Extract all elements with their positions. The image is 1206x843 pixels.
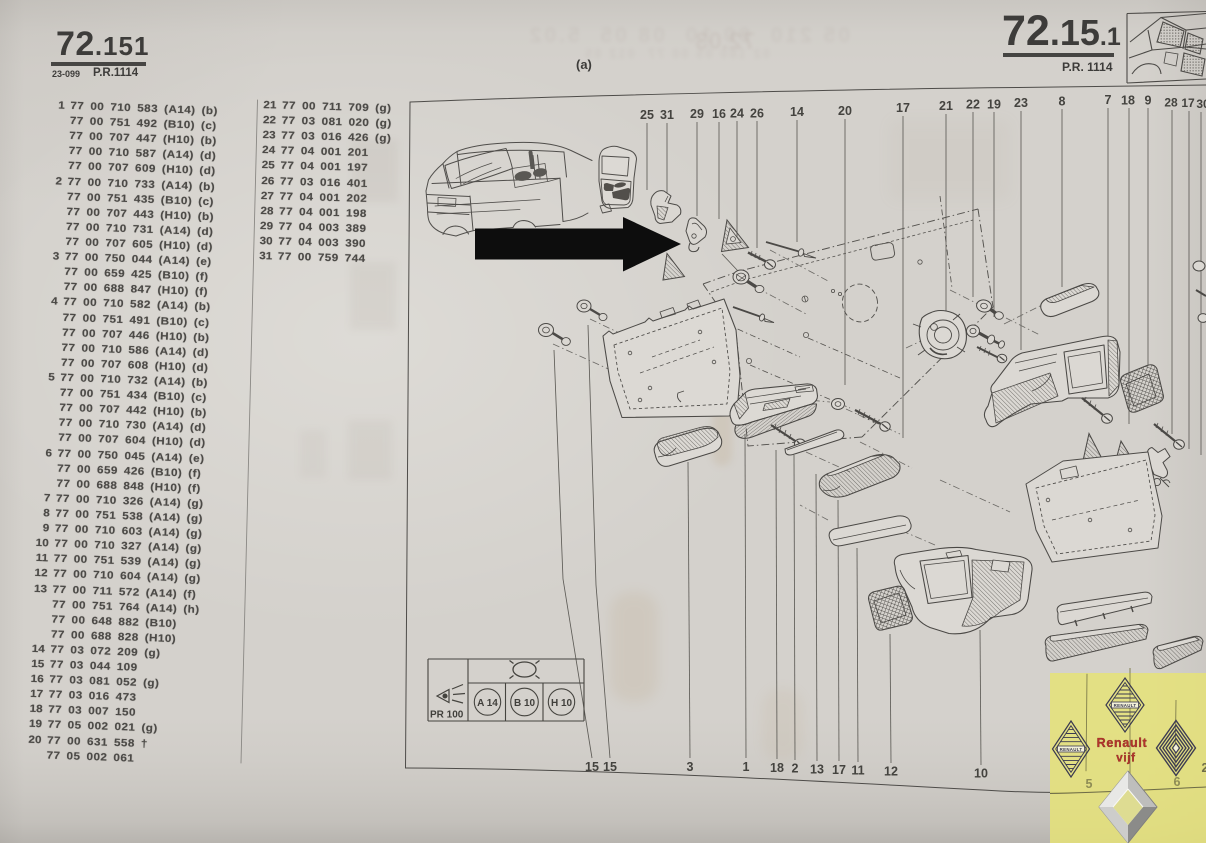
svg-text:17: 17 [896,101,910,115]
svg-text:H 10: H 10 [551,698,573,709]
svg-text:10: 10 [974,767,988,781]
svg-text:vijf: vijf [1116,753,1135,765]
svg-text:16: 16 [712,107,726,121]
svg-text:RENAULT: RENAULT [1060,747,1083,752]
svg-text:21: 21 [939,99,953,113]
svg-text:PR 100: PR 100 [430,710,464,721]
svg-text:22: 22 [966,98,980,112]
svg-text:19: 19 [987,98,1001,112]
svg-text:13: 13 [810,763,824,777]
svg-text:17: 17 [832,763,846,777]
svg-text:24: 24 [730,107,744,121]
svg-text:23: 23 [1014,96,1028,110]
svg-text:2: 2 [792,762,799,776]
svg-text:8: 8 [1059,95,1066,109]
svg-text:11: 11 [851,764,864,778]
svg-text:29: 29 [690,107,704,121]
svg-text:B 10: B 10 [514,698,536,709]
svg-text:RENAULT: RENAULT [1114,703,1137,708]
svg-text:17: 17 [1181,96,1195,110]
svg-text:Renault: Renault [1097,736,1148,750]
svg-text:1: 1 [743,760,750,774]
svg-text:12: 12 [884,765,898,779]
svg-text:18: 18 [1121,94,1135,108]
svg-text:18: 18 [770,761,784,775]
svg-text:3: 3 [687,760,694,774]
svg-text:6: 6 [1174,775,1181,789]
svg-text:30: 30 [1196,97,1206,111]
svg-text:25: 25 [640,108,654,122]
svg-text:14: 14 [790,105,804,119]
svg-text:5: 5 [1086,777,1093,791]
svg-text:28: 28 [1164,96,1178,110]
svg-text:15: 15 [585,760,599,774]
svg-text:A 14: A 14 [477,698,498,709]
svg-text:20: 20 [838,104,852,118]
svg-text:2: 2 [1202,761,1206,775]
svg-text:31: 31 [660,108,674,122]
svg-text:9: 9 [1145,94,1152,108]
svg-text:26: 26 [750,107,764,121]
svg-text:7: 7 [1105,93,1112,107]
svg-text:15: 15 [603,760,617,774]
